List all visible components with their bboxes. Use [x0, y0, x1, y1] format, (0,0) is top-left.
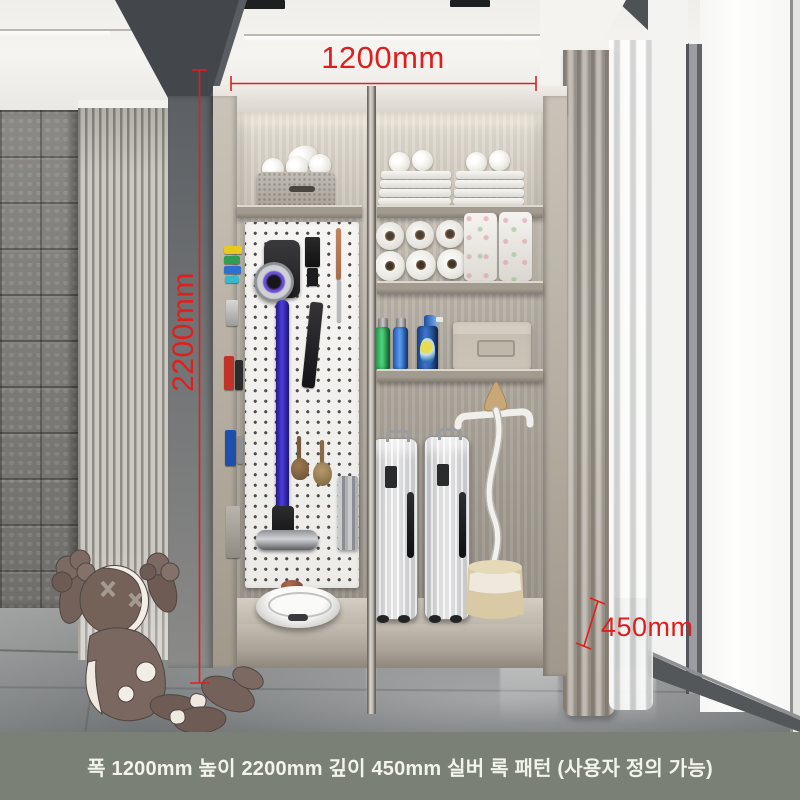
caption-bar: 폭 1200mm 높이 2200mm 깊이 450mm 실버 록 패턴 (사용자…: [0, 732, 800, 800]
width-dimension-label: 1200mm: [283, 40, 483, 76]
caption-text: 폭 1200mm 높이 2200mm 깊이 450mm 실버 록 패턴 (사용자…: [87, 752, 713, 781]
product-photo: 1200mm 2200mm 450mm 폭 1200mm 높이 2200mm 깊…: [0, 0, 800, 800]
depth-dimension-line: [584, 601, 598, 646]
height-dimension-label: 2200mm: [167, 272, 201, 392]
depth-dimension-label: 450mm: [601, 612, 711, 643]
